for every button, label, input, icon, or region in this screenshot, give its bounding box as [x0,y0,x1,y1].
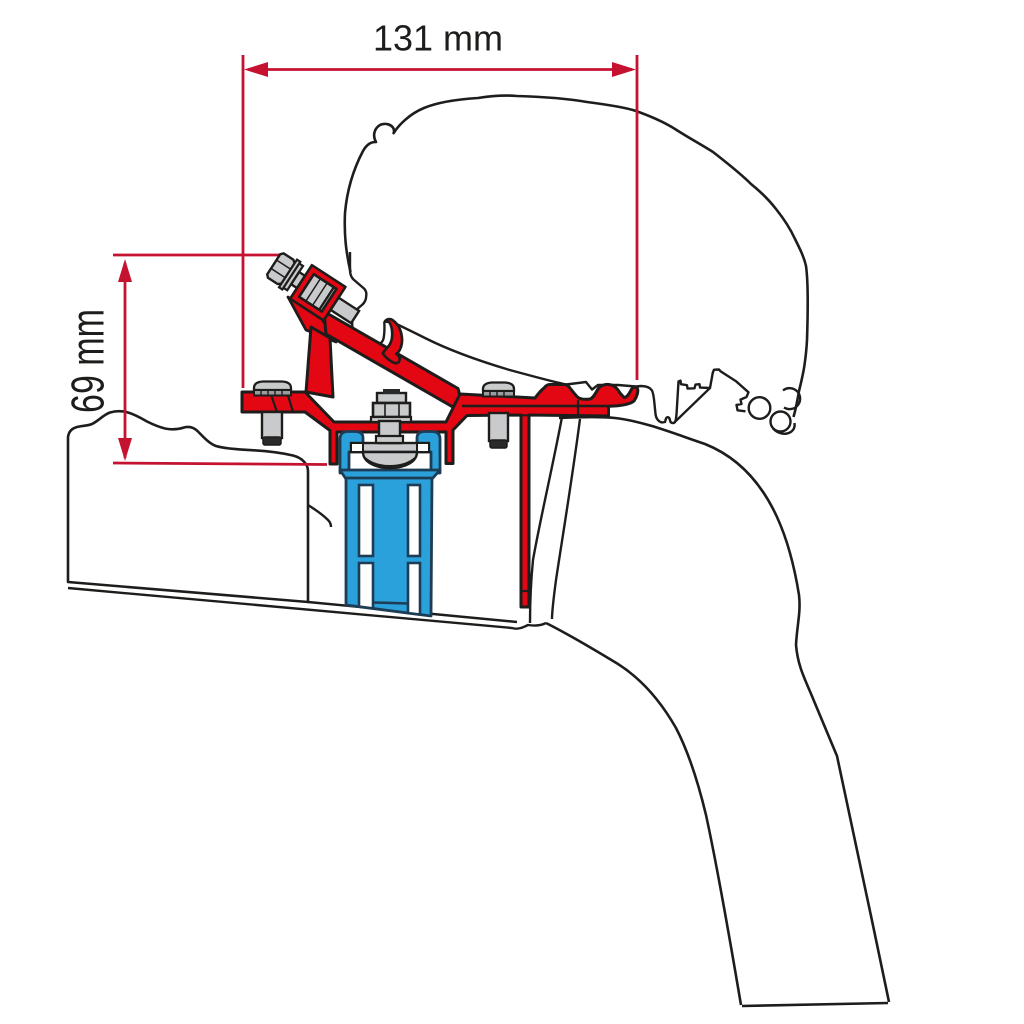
svg-text:131 mm: 131 mm [373,18,503,59]
svg-text:69 mm: 69 mm [61,309,113,413]
